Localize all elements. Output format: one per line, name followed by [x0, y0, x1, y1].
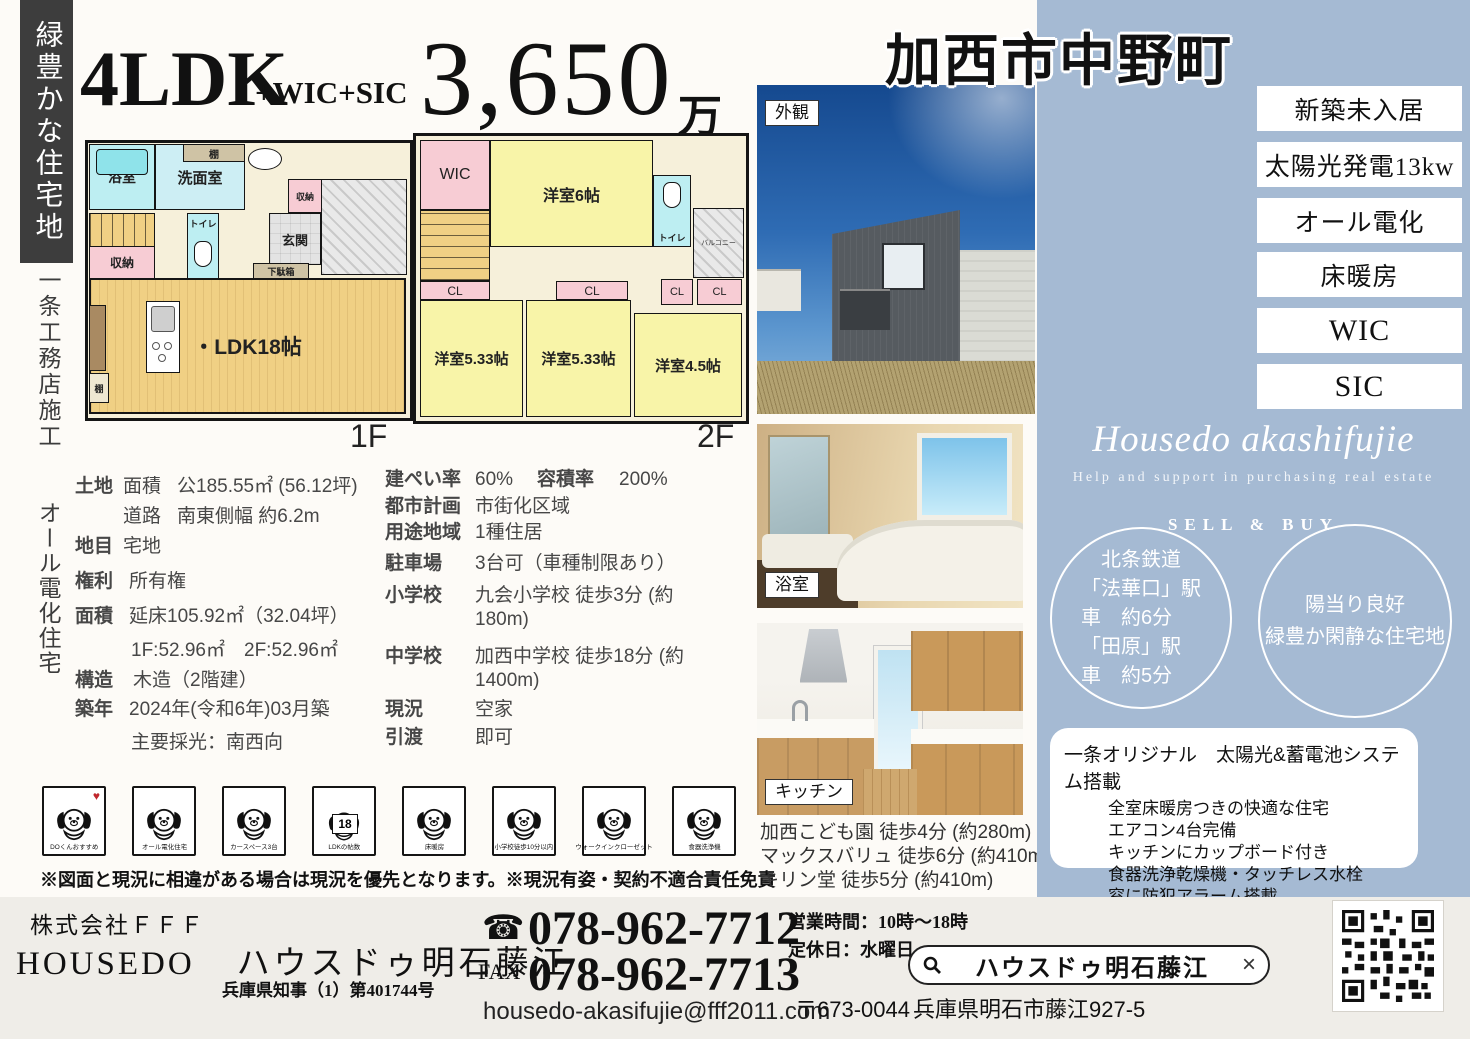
detail-row: 小学校九会小学校 徒歩3分 (約180m)	[385, 584, 720, 632]
badge-floor-heating: 床暖房	[1257, 252, 1462, 297]
side-counter	[911, 729, 1023, 744]
feature-item: 食器洗浄乾燥機・タッチレス水栓	[1108, 864, 1404, 886]
feature-box-school-distance: 小学校徒歩10分以内	[492, 786, 556, 856]
distance-item: キリン堂 徒歩5分 (約410m)	[760, 869, 1050, 893]
holiday: 定休日：水曜日	[788, 936, 914, 962]
company-name: 株式会社ＦＦＦ	[30, 906, 205, 940]
bath-mirror	[768, 435, 831, 540]
room-45: 洋室4.5帖	[634, 313, 742, 417]
photo-label-bath: 浴室	[765, 572, 819, 598]
fax-number: 078-962-7713	[528, 947, 800, 1002]
environment-circle: 陽当り良好 緑豊か閑静な住宅地	[1258, 524, 1452, 718]
feature-box-floor-heating: 床暖房	[402, 786, 466, 856]
flyer-page: 緑豊かな住宅地 一条工務店施工 オール電化住宅 4LDK +WIC+SIC 3,…	[0, 0, 1470, 1039]
badge-sic: SIC	[1257, 364, 1462, 409]
detail-row: 地目宅地	[75, 534, 390, 560]
stairs-1f	[89, 213, 155, 247]
grass	[757, 361, 1035, 414]
location-title: 加西市中野町	[885, 16, 1233, 97]
dog-icon	[53, 806, 95, 844]
distance-item: 加西こども園 徒歩4分 (約280m)	[760, 821, 1050, 845]
feature-box-dishwasher: 食器洗浄機	[672, 786, 736, 856]
builder-note: 一条工務店施工	[35, 268, 60, 450]
circle-line: 「田原」駅	[1081, 633, 1201, 662]
detail-row: 現況空家	[385, 698, 720, 722]
cabinet-fixture	[89, 305, 106, 371]
floor-label-1f: 1F	[350, 418, 387, 455]
detail-row: 主要採光：南西向	[75, 730, 390, 756]
toilet-fixture-2f	[663, 182, 681, 208]
detail-row: 面積延床105.92㎡（32.04坪）	[75, 604, 390, 630]
detail-row: 建ぺい率60%容積率200%	[385, 468, 720, 492]
shelf-bottom: 棚	[89, 373, 109, 403]
distance-item: マックスバリュ 徒歩6分 (約410m)	[760, 845, 1050, 869]
photo-label-kitchen: キッチン	[765, 779, 853, 805]
sun-glare	[868, 85, 1035, 217]
wood-floor	[863, 769, 916, 815]
bathroom-photo: 浴室	[757, 424, 1023, 608]
dog-icon	[683, 806, 725, 844]
closet-2: CL	[556, 281, 628, 300]
feature-item: エアコン4台完備	[1108, 820, 1404, 842]
sink-fixture	[248, 148, 282, 170]
search-icon	[922, 955, 942, 975]
circle-line: 車 約5分	[1081, 662, 1201, 691]
dog-icon	[503, 806, 545, 844]
price: 3,650	[420, 18, 674, 140]
bathtub	[96, 149, 148, 175]
balcony: バルコニー	[693, 208, 744, 278]
shoe-box: 下駄箱	[253, 263, 309, 279]
feature-box-do-kun: ♥ DOくんおすすめ	[42, 786, 106, 856]
disclaimer-text: ※図面と現況に相違がある場合は現況を優先となります。※現況有姿・契約不適合責任免…	[40, 866, 776, 892]
stairs-2f	[420, 210, 490, 281]
entrance-porch	[321, 179, 407, 275]
closet-4: CL	[697, 279, 742, 305]
dog-icon	[233, 806, 275, 844]
feature-box-ldk-size: 18 LDKの帖数	[312, 786, 376, 856]
green-area-banner: 緑豊かな住宅地	[20, 0, 73, 263]
detail-row: 用途地域1種住居	[385, 521, 720, 545]
circle-line: 陽当り良好	[1265, 589, 1445, 621]
business-hours: 営業時間：10時～18時	[788, 908, 968, 934]
circle-line: 「法華口」駅	[1081, 575, 1201, 604]
detail-row: 構造木造（2階建）	[75, 668, 390, 694]
floorplan-2f: WIC 洋室6帖 トイレ バルコニー CL CL CL CL 洋室5.33帖 洋…	[413, 133, 749, 424]
detail-row: 都市計画市街化区域	[385, 495, 720, 519]
neighbor-house	[757, 269, 801, 310]
feature-box-car-space: カースペース3台	[222, 786, 286, 856]
brand-name: HOUSEDO	[16, 946, 195, 983]
detail-row: 駐車場3台可（車種制限あり）	[385, 552, 720, 576]
detail-row: 道路南東側幅 約6.2m	[75, 504, 390, 530]
left-vertical-notes: 一条工務店施工 オール電化住宅	[30, 268, 64, 688]
kitchen-photo: キッチン	[757, 623, 1023, 815]
closet-3: CL	[661, 279, 693, 305]
details-left-table: 土地面積公185.55㎡ (56.12坪) 道路南東側幅 約6.2m 地目宅地 …	[75, 474, 390, 756]
house-window	[882, 243, 925, 290]
sell-buy-label: SELL & BUY	[1037, 515, 1470, 535]
postal-code: 〒673-0044	[795, 992, 910, 1024]
brand-script: Housedo akashifujie	[1037, 418, 1470, 461]
detail-row: 引渡即可	[385, 726, 720, 750]
kitchen-counter	[146, 301, 180, 373]
phone-icon: ☎	[482, 908, 524, 948]
detail-row: 土地面積公185.55㎡ (56.12坪)	[75, 474, 390, 500]
room-entrance: 玄関	[269, 213, 321, 265]
distance-list: 加西こども園 徒歩4分 (約280m) マックスバリュ 徒歩6分 (約410m)…	[760, 821, 1050, 893]
heart-icon: ♥	[93, 789, 100, 803]
circle-line: 北条鉄道	[1081, 546, 1201, 575]
room-533b: 洋室5.33帖	[526, 300, 631, 417]
detail-row: 権利所有権	[75, 569, 390, 595]
dog-icon	[593, 806, 635, 844]
license-number: 兵庫県知事（1）第401744号	[222, 976, 435, 1001]
balcony-rail	[840, 289, 890, 330]
dog-icon	[143, 806, 185, 844]
qr-code	[1332, 900, 1444, 1012]
bathtub-photo	[837, 520, 1023, 601]
lower-cabinets	[911, 744, 1023, 815]
badge-solar: 太陽光発電13kw	[1257, 142, 1462, 187]
feature-icon-row: ♥ DOくんおすすめ オール電化住宅 カースペース3台 18 LDKの帖数 床暖…	[42, 786, 736, 856]
banner-text: 緑豊かな住宅地	[27, 20, 67, 244]
circle-line: 車 約6分	[1081, 604, 1201, 633]
feature-item: 全室床暖房つきの快適な住宅	[1108, 798, 1404, 820]
fax-label: FAX	[478, 959, 520, 985]
room-533a: 洋室5.33帖	[420, 300, 523, 417]
feature-box-all-electric: オール電化住宅	[132, 786, 196, 856]
circle-line: 緑豊か閑静な住宅地	[1265, 621, 1445, 653]
storage-left: 収納	[89, 246, 155, 279]
all-electric-note: オール電化住宅	[35, 501, 60, 676]
room-ldk: ・LDK18帖	[89, 278, 406, 414]
bath-window	[917, 433, 1012, 520]
toilet-fixture-1f	[194, 241, 212, 267]
room-wic: WIC	[420, 140, 490, 210]
ldk-size-plate: 18	[332, 814, 358, 834]
storage-right: 収納	[288, 179, 322, 213]
closet-1: CL	[420, 281, 490, 300]
clear-icon[interactable]: ×	[1242, 951, 1256, 979]
floor-label-2f: 2F	[697, 418, 734, 455]
detail-row: 1F:52.96㎡ 2F:52.96㎡	[75, 638, 390, 664]
station-circle: 北条鉄道 「法華口」駅 車 約6分 「田原」駅 車 約5分	[1050, 527, 1232, 709]
floorplan-1f: 浴室 洗面室 棚 収納 玄関 下駄箱 トイレ 収納 ・LDK18帖 棚	[85, 140, 413, 421]
search-input-text[interactable]: ハウスドゥ明石藤江	[942, 948, 1242, 983]
room-6jo: 洋室6帖	[490, 140, 653, 247]
island-counter	[757, 719, 874, 738]
office-address: 兵庫県明石市藤江927-5	[913, 992, 1145, 1024]
feature-box-title: 一条オリジナル 太陽光&蓄電池システム搭載	[1064, 740, 1404, 794]
dog-icon	[413, 806, 455, 844]
badge-new-build: 新築未入居	[1257, 86, 1462, 131]
shelf-top: 棚	[183, 144, 245, 162]
feature-box-walk-in-closet: ウォークインクローゼット	[582, 786, 646, 856]
detail-row: 中学校加西中学校 徒歩18分 (約1400m)	[385, 645, 720, 693]
exterior-photo: 外観	[757, 85, 1035, 414]
details-right-table: 建ぺい率60%容積率200% 都市計画市街化区域 用途地域1種住居 駐車場3台可…	[385, 468, 720, 750]
brand-subtitle: Help and support in purchasing real esta…	[1037, 470, 1470, 486]
search-box[interactable]: ハウスドゥ明石藤江 ×	[908, 945, 1270, 985]
badge-wic: WIC	[1257, 308, 1462, 353]
photo-label-exterior: 外観	[765, 100, 819, 126]
layout-suffix: +WIC+SIC	[255, 75, 407, 111]
upper-cabinets	[911, 631, 1023, 712]
detail-row: 築年2024年(令和6年)03月築	[75, 697, 390, 723]
email-address: housedo-akasifujie@fff2011.com	[483, 998, 830, 1026]
faucet	[792, 700, 808, 721]
feature-item: キッチンにカップボード付き	[1108, 842, 1404, 864]
feature-callout-box: 一条オリジナル 太陽光&蓄電池システム搭載 全室床暖房つきの快適な住宅 エアコン…	[1050, 728, 1418, 868]
badge-all-electric: オール電化	[1257, 198, 1462, 243]
